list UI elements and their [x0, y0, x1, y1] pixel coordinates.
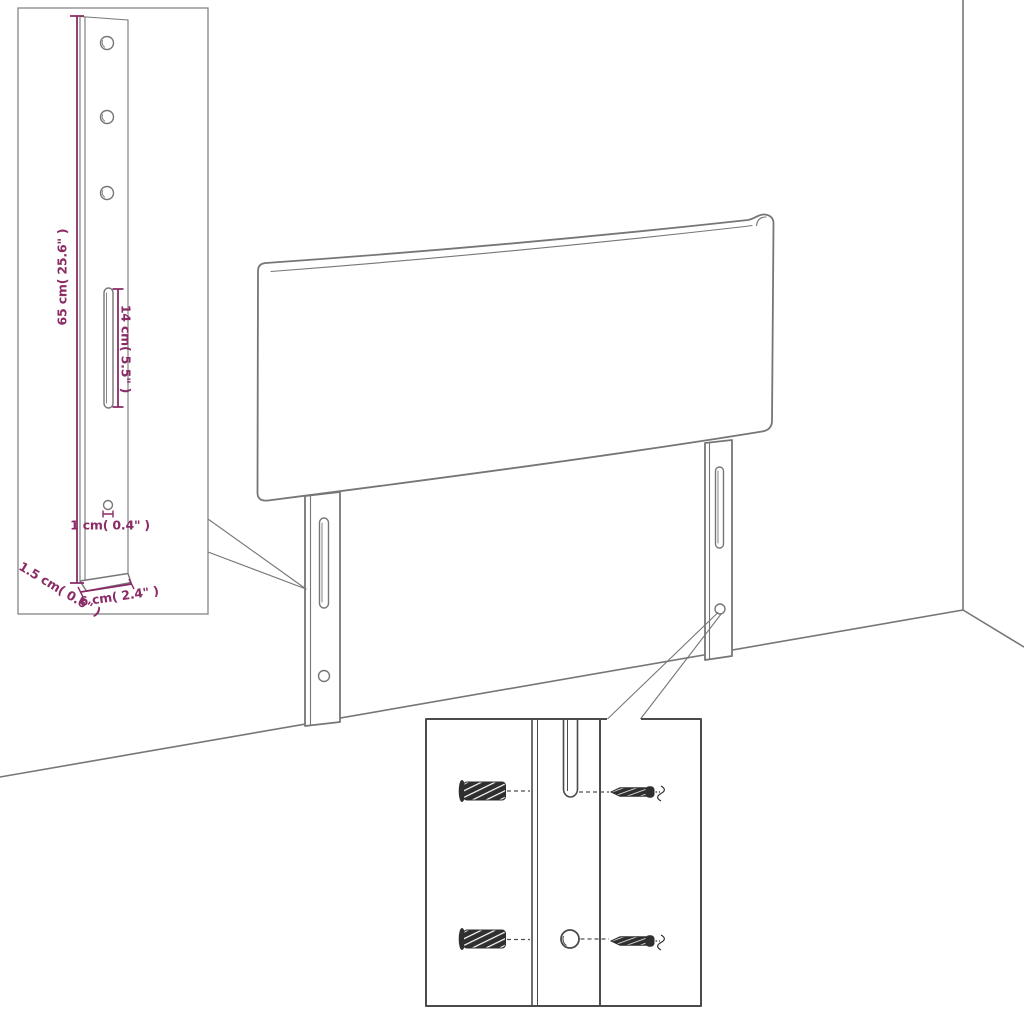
callout-lines-bracket-inset: [208, 519, 306, 589]
bracket-small-hole: [104, 501, 113, 510]
left-leg-hole: [319, 671, 330, 682]
bracket-top-edge: [80, 17, 128, 21]
floor-line-right: [963, 610, 1024, 647]
left-leg: [305, 492, 340, 726]
bracket-drawing: [80, 17, 131, 592]
headboard-panel: [258, 214, 774, 500]
wall-plug-top: [459, 781, 505, 802]
diagram-canvas: [0, 0, 1024, 1024]
strip-hole: [561, 930, 579, 948]
mounting-detail-inset: [426, 719, 701, 1006]
dimension-label-slot-length: 14 cm( 5.5" ): [119, 305, 134, 393]
wall-plug-bottom: [459, 929, 505, 950]
dim-bracket-hole-diameter: [103, 511, 113, 518]
right-leg-hole: [715, 604, 725, 614]
left-leg-slot: [320, 518, 329, 608]
right-leg: [705, 440, 732, 660]
callout-line: [208, 552, 306, 589]
callout-line: [208, 519, 306, 589]
screw-icon: [611, 937, 646, 945]
headboard: [258, 214, 774, 500]
screw-head: [646, 787, 654, 797]
wall-plug-body: [464, 782, 506, 800]
callout-line: [641, 614, 722, 720]
callout-line: [608, 613, 719, 720]
dimension-label-height: 65 cm( 25.6" ): [55, 229, 70, 326]
screw-icon: [611, 788, 646, 796]
dimension-label-hole-diameter: 1 cm( 0.4" ): [70, 518, 150, 533]
bracket-slot: [104, 288, 113, 408]
right-leg-slot: [716, 467, 724, 548]
screw-head: [646, 936, 654, 946]
wall-plug-body: [464, 930, 506, 948]
product-diagram: 65 cm( 25.6" ) 14 cm( 5.5" ) 1 cm( 0.4" …: [0, 0, 1024, 1024]
